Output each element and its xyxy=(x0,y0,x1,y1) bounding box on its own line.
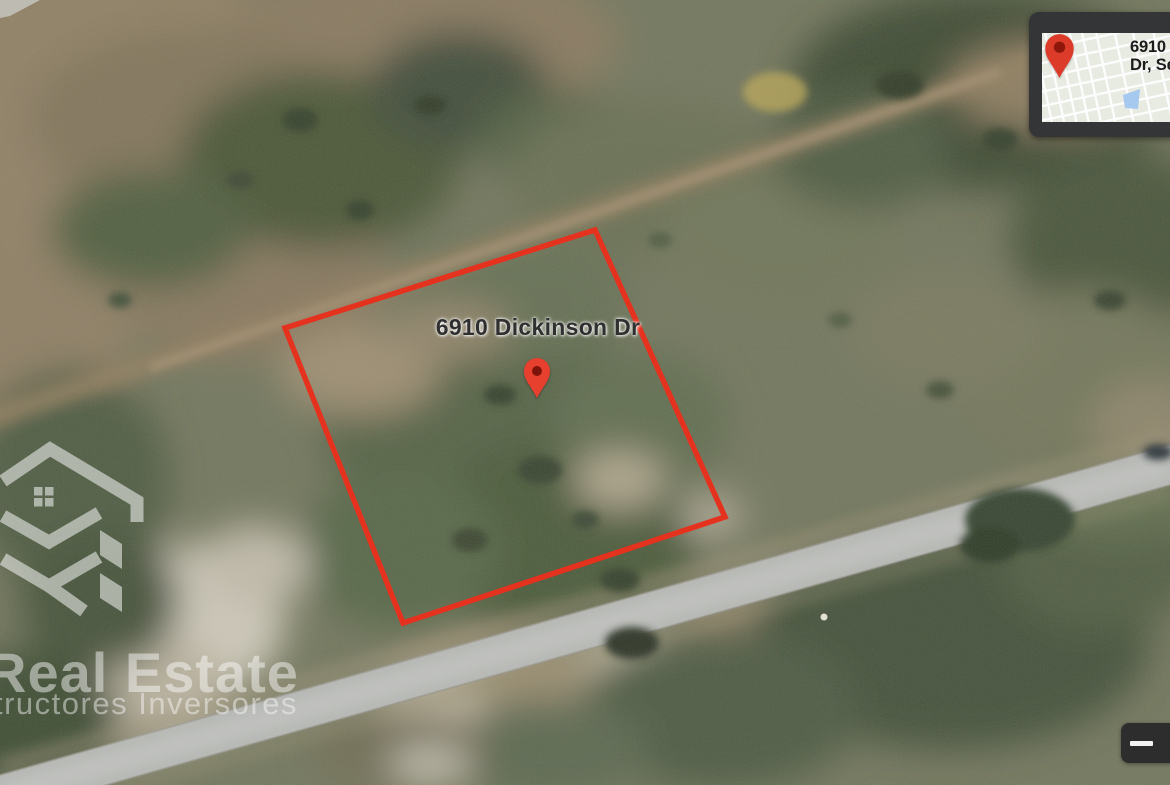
inset-address-line2: Dr, Se xyxy=(1130,57,1170,74)
minus-icon xyxy=(1130,741,1153,746)
inset-map: 6910 Dr, Se xyxy=(1042,33,1170,122)
map-canvas[interactable]: 6910 Dickinson Dr Real Estate tructores xyxy=(0,0,1170,785)
inset-map-thumbnail[interactable]: 6910 Dr, Se xyxy=(1029,12,1170,137)
parcel-boundary xyxy=(285,230,725,623)
inset-address-line1: 6910 xyxy=(1130,39,1166,56)
zoom-out-button[interactable] xyxy=(1121,723,1170,763)
address-label: 6910 Dickinson Dr xyxy=(436,314,641,341)
inset-map-pin-icon xyxy=(1042,33,1077,79)
parcel-boundary-overlay xyxy=(0,0,1170,785)
map-pin-icon[interactable] xyxy=(521,357,553,399)
